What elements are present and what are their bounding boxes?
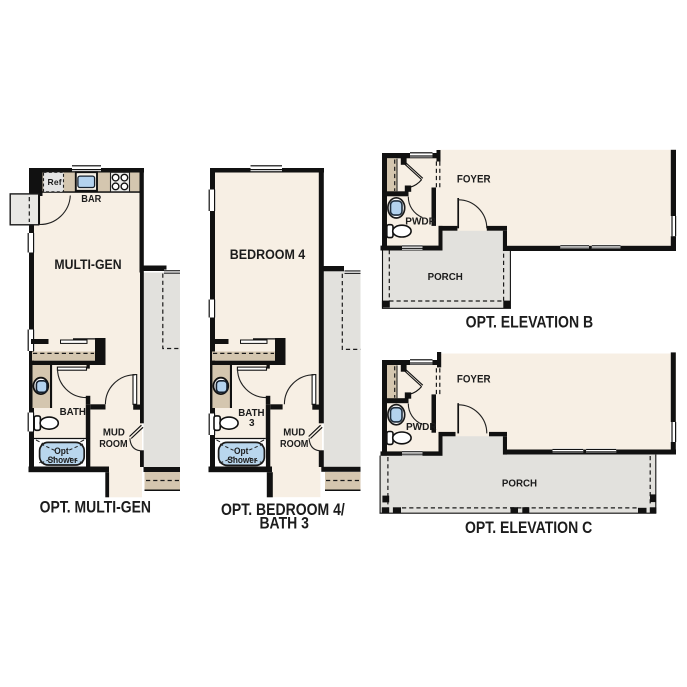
svg-text:BEDROOM 4: BEDROOM 4 [230,247,306,262]
svg-text:Ref: Ref [48,177,62,187]
svg-text:BATH: BATH [60,407,86,418]
svg-text:PWDR: PWDR [406,421,437,433]
svg-text:BAR: BAR [81,194,102,205]
svg-text:Shower: Shower [48,455,78,465]
svg-text:PWDR: PWDR [405,215,436,227]
svg-text:3: 3 [249,418,255,429]
svg-text:Shower: Shower [227,455,257,465]
svg-text:ROOM: ROOM [280,439,308,450]
svg-text:OPT. MULTI-GEN: OPT. MULTI-GEN [40,497,151,516]
svg-text:OPT. ELEVATION B: OPT. ELEVATION B [466,312,594,331]
svg-text:BATH 3: BATH 3 [259,514,309,533]
svg-text:MULTI-GEN: MULTI-GEN [54,257,121,272]
svg-text:PORCH: PORCH [502,477,537,489]
svg-text:MUD: MUD [103,428,125,439]
svg-text:FOYER: FOYER [457,173,491,185]
svg-text:MUD: MUD [283,427,305,438]
svg-text:PORCH: PORCH [428,271,463,283]
svg-text:OPT. ELEVATION C: OPT. ELEVATION C [465,518,592,537]
svg-text:FOYER: FOYER [457,373,491,385]
svg-text:ROOM: ROOM [99,439,127,450]
